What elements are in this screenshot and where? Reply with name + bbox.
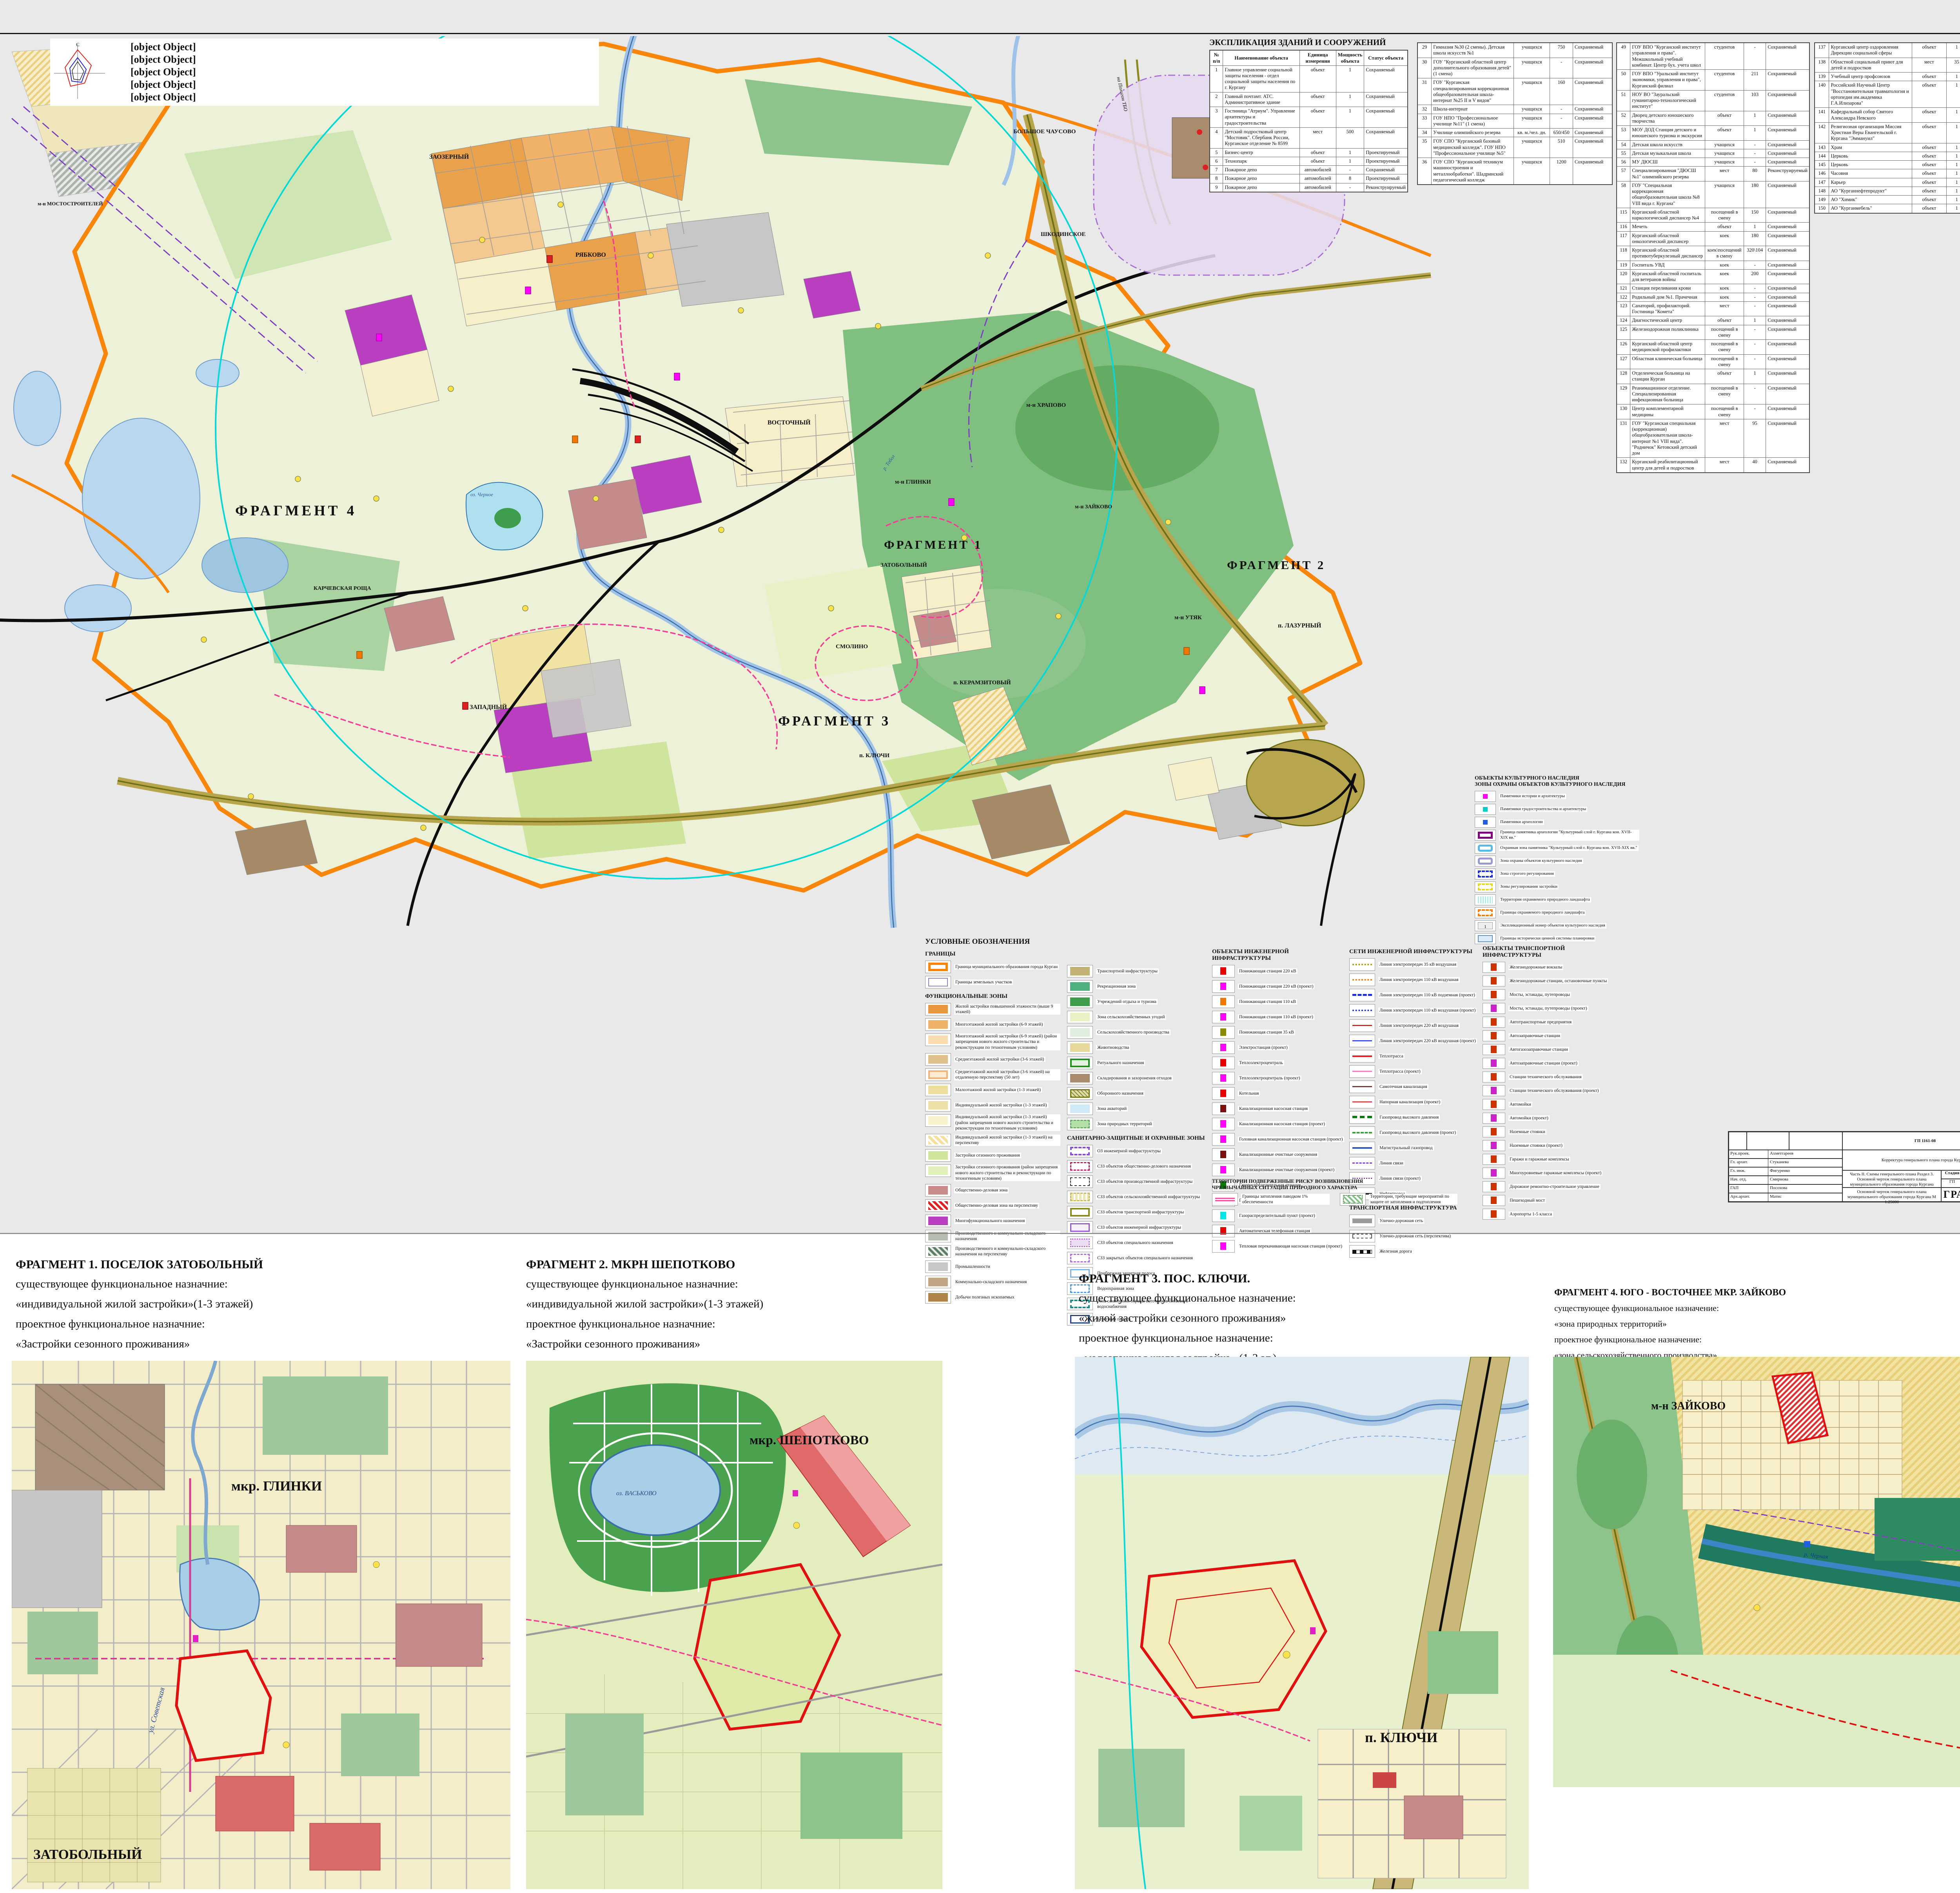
legend-swatch-fill [1070,1089,1090,1098]
legend-swatch-fill [928,1086,948,1094]
legend-item-label: Наземные стоянки (проект) [1508,1143,1564,1148]
cell-unit: учащихся [1514,158,1550,185]
cell-num: 36 [1417,158,1432,185]
fragment-title-line: ФРАГМЕНТ 1. ПОСЕЛОК ЗАТОБОЛЬНЫЙ [16,1254,263,1274]
legend-swatch [1067,1237,1093,1249]
fragment-title-line: «зона природных территорий» [1554,1316,1786,1332]
legend-item: Станции технического обслуживания [1483,1072,1616,1082]
legend-swatch [1349,1050,1375,1063]
cell-status: Проектируемый [1364,174,1408,183]
legend-swatch [925,1164,951,1177]
legend-swatch-fill [1070,997,1090,1006]
legend-item: Общественно-деловая зона на перспективу [925,1199,1060,1212]
fragment-title-line: проектное функциональное назначение: [1554,1332,1786,1347]
stamp-name: Фигуренко [1768,1168,1842,1175]
cell-num: 130 [1617,404,1630,419]
legend-item: Жилой застройки повышенной этажности (вы… [925,1003,1060,1015]
cell-capacity: 160 [1550,78,1573,105]
map-place-label: на Полигон ТБО [1116,76,1129,112]
explication-row: 56 МУ ДЮСШ учащихся - Сохраняемый [1617,158,1809,167]
org-logo-text: ГРАД [1944,1189,1960,1200]
cell-capacity: 500 [1336,127,1364,148]
cell-capacity: - [1744,293,1766,301]
legend-item: Пешеходный мост [1483,1195,1616,1206]
legend-swatch [1483,1030,1505,1041]
legend-item-label: Понижающая станция 110 кВ (проект) [1238,1014,1314,1020]
cell-name: Отделенческая больница на станции Курган [1630,369,1705,384]
cell-status: Сохраняемый [1766,325,1809,340]
cell-num: 32 [1417,105,1432,114]
legend-item-label: Автотранспортные предприятия [1508,1019,1573,1025]
cell-num: 9 [1210,183,1223,192]
cell-status: Сохраняемый [1766,458,1809,473]
legend-item: Газопровод высокого давления (проект) [1349,1126,1479,1139]
legend-item: Линия электропередач 110 кВ подземная (п… [1349,989,1479,1001]
cell-num: 31 [1417,78,1432,105]
cell-capacity: 180 [1744,231,1766,246]
cell-unit: мест [1705,167,1744,181]
legend-item: Зона сельскохозяйственных угодий [1067,1011,1206,1023]
legend-swatch [1212,1026,1235,1039]
legend-swatch-fill [1352,1250,1372,1254]
legend-swatch [1349,1157,1375,1170]
cell-capacity: - [1550,114,1573,129]
legend-item: Памятники градостроительства и архитекту… [1475,804,1639,815]
fragment-title-line: проектное функциональное назначение: [1079,1328,1296,1348]
legend-swatch [1212,1193,1238,1206]
explication-row: 9 Пожарное депо автомобилей - Реконструи… [1210,183,1408,192]
cell-name: Курганский центр оздоровления Дирекции с… [1829,43,1912,58]
legend-swatch [925,1245,951,1258]
explication-row: 117 Курганский областной онкологический … [1617,231,1809,246]
cell-capacity: 1 [1946,81,1960,108]
legend-swatch [1483,962,1505,973]
legend-item-label: Теплотрасса [1378,1053,1405,1059]
cell-name: Религиозная организация Миссия Христиан … [1829,122,1912,143]
cell-num: 6 [1210,157,1223,165]
legend-swatch [1067,1102,1093,1115]
legend-item: Зоны регулирования застройки [1475,881,1639,892]
legend-item: Автозаправочные станции (проект) [1483,1058,1616,1069]
legend-swatch [1349,1065,1375,1078]
legend-item-label: Зоны регулирования застройки [1499,884,1559,890]
legend-item-label: Застройки сезонного проживания [954,1153,1021,1158]
legend-item: Железнодорожные вокзалы [1483,962,1616,973]
legend-item-label: Рекреационная зона [1096,984,1137,989]
stamp-role: ГАП [1729,1185,1768,1193]
cell-capacity: 103 [1744,90,1766,111]
legend-swatch [1349,1230,1375,1242]
legend-swatch [1349,1142,1375,1154]
legend-item-label: Тепловая перекачивающая насосная станция… [1238,1244,1343,1249]
legend-swatch-fill [1491,977,1497,985]
cell-num: 4 [1210,127,1223,148]
legend-swatch [1212,1240,1235,1253]
legend-item: Многоуровневые гаражные комплексы (проек… [1483,1168,1616,1179]
legend-item-label: Магистральный газопровод [1378,1145,1434,1151]
explication-row: 122 Родильный дом №1. Прачечная коек - С… [1617,293,1809,301]
explication-row: 3 Гостиница "Атриум". Управление архитек… [1210,107,1408,128]
map-place-label: ШКОДИНСКОЕ [1041,231,1086,238]
legend-item-label: Канализационная насосная станция (проект… [1238,1121,1326,1127]
legend-item: Зона природных территорий [1067,1118,1206,1130]
legend-item: Газопровод высокого давления [1349,1111,1479,1124]
legend-swatch [1212,1148,1235,1161]
legend-item: Оборонного назначения [1067,1087,1206,1100]
legend-swatch [925,1134,951,1146]
legend-item-label: СЗЗ объектов производственной инфраструк… [1096,1179,1194,1184]
map-place-label: м-н УТЯК [1174,615,1202,621]
legend-swatch [1475,856,1496,867]
legend-item-label: Многоэтажной жилой застройки (6-9 этажей… [954,1034,1060,1050]
fragment2-title: ФРАГМЕНТ 2. МКРН ШЕПОТКОВОсуществующее ф… [526,1254,763,1354]
cell-name: Главный почтамт. АТС. Административное з… [1223,92,1299,107]
explication-row: 127 Областная клиническая больница посещ… [1617,354,1809,369]
fragment-title-line: существующее функциональное назначние: [526,1274,763,1294]
cell-unit: автомобилей [1299,166,1336,174]
legend-item: Транспортной инфраструктуры [1067,965,1206,977]
drawing-title-line: [object Object] [131,41,596,53]
legend-main-title: УСЛОВНЫЕ ОБОЗНАЧЕНИЯ [925,937,1060,946]
legend-item-label: Теплоэлектроцентраль (проект) [1238,1075,1301,1081]
cell-name: ГОУ "Специальная коррекционная общеобраз… [1630,181,1705,208]
legend-item: Понижающая станция 220 кВ (проект) [1212,980,1345,993]
legend-swatch-fill [1070,1254,1090,1262]
cell-unit: посещений в смену [1705,325,1744,340]
legend-swatch [925,1291,951,1304]
legend-swatch [1483,976,1505,986]
legend-swatch-fill [1478,870,1493,878]
explication-row: 30 ГОУ "Курганский областной центр допол… [1417,58,1612,78]
cell-name: Курганский областной онкологический дисп… [1630,231,1705,246]
explication-row: 132 Курганский реабилитационный центр дл… [1617,458,1809,473]
legend-item-label: Гаражи и гаражные комплексы [1508,1157,1570,1162]
legend-swatch-fill [1491,1101,1497,1108]
legend-swatch-fill [1491,1142,1497,1149]
cell-status: Сохраняемый [1766,301,1809,316]
legend-swatch [925,1276,951,1288]
cell-name: Учебный центр профсоюзов [1829,73,1912,81]
legend-item-label: Линия электропередач 110 кВ воздушная (п… [1378,1008,1477,1013]
legend-swatch-fill [1220,1059,1226,1066]
cell-status: Проектируемый [1364,157,1408,165]
cell-unit: объект [1705,316,1744,325]
cell-capacity: - [1744,43,1766,70]
cell-name: Карьер [1829,178,1912,187]
cell-num: 142 [1815,122,1829,143]
cell-name: Курганский областной противотуберкулезны… [1630,246,1705,261]
cell-num: 8 [1210,174,1223,183]
cell-unit: объект [1912,43,1946,58]
legend-swatch-fill [1220,1166,1226,1173]
cell-capacity: - [1744,158,1766,167]
legend-item: Линия электропередач 220 кВ воздушная (п… [1349,1035,1479,1047]
legend-heading-nets: СЕТИ ИНЖЕНЕРНОЙ ИНФРАСТРУКТУРЫ [1349,948,1479,955]
legend-item: Электростанция (проект) [1212,1041,1345,1054]
legend-swatch-fill [1352,979,1372,981]
cell-status: Сохраняемый [1766,208,1809,223]
cell-num: 33 [1417,114,1432,129]
map-place-label: ФРАГМЕНТ 2 [1227,558,1325,572]
cell-unit: объект [1912,81,1946,108]
legend-swatch [1349,1004,1375,1017]
cell-capacity: 1 [1744,223,1766,231]
legend-item: Улично-дорожная сеть [1349,1215,1479,1227]
legend-swatch [1349,1019,1375,1032]
stamp-name: Смирнова [1768,1176,1842,1184]
explication-block-2: 29 Гимназия №30 (2 смены). Детская школа… [1417,42,1612,185]
cell-unit: объект [1912,73,1946,81]
stamp-role: Арх.архит. [1729,1193,1768,1201]
fragment-title-line: «Застройки сезонного проживания» [526,1334,763,1354]
heritage-title-2: ЗОНЫ ОХРАНЫ ОБЪЕКТОВ КУЛЬТУРНОГО НАСЛЕДИ… [1475,781,1639,788]
legend-swatch [925,1184,951,1197]
explication-row: 1 Главное управление социальной защиты н… [1210,65,1408,92]
legend-swatch [1475,894,1496,905]
fragment4-canvas [1553,1357,1960,1787]
legend-swatch [1483,1126,1505,1137]
cell-name: Областная клиническая больница [1630,354,1705,369]
legend-swatch-fill [1070,1120,1090,1128]
cell-name: Храм [1829,143,1912,152]
legend-item: Наземные стоянки (проект) [1483,1140,1616,1151]
map-place-label: ФРАГМЕНТ 4 [235,502,357,519]
cell-status: Сохраняемый [1573,43,1612,58]
cell-name: ГОУ НПО "Профессиональное училище №11" (… [1432,114,1514,129]
legend-swatch-fill [1220,1044,1226,1051]
cell-unit: посещений в смену [1705,384,1744,404]
legend-item: Индивидуальной жилой застройки (1-3 этаж… [925,1099,1060,1112]
legend-item-label: Линия электропередач 220 кВ воздушная (п… [1378,1038,1477,1044]
cell-name: АО "Курганмебель" [1829,204,1912,213]
legend-item-label: Аэропорты 1-5 класса [1508,1211,1553,1217]
legend-swatch [1067,1087,1093,1100]
explication-row: 52 Дворец детского юношеского творчества… [1617,111,1809,126]
legend-item-label: Памятники истории и архитектуры [1499,794,1566,799]
legend-swatch-fill [928,1186,948,1195]
legend-item-label: СЗЗ объектов инженерной инфраструктуры [1096,1225,1182,1230]
stamp-name: Матис [1768,1193,1842,1201]
legend-item: Канализационные очистные сооружения [1212,1148,1345,1161]
cell-name: Центр комплементарной медицины [1630,404,1705,419]
legend-item: СЗЗ объектов специального назначения [1067,1237,1206,1249]
legend-item-label: Среднеэтажной жилой застройки (3-6 этаже… [954,1069,1060,1081]
cell-name: АО "Химик" [1829,196,1912,204]
cell-capacity: - [1744,354,1766,369]
cell-num: 117 [1617,231,1630,246]
cell-unit: посещений в смену [1705,404,1744,419]
legend-item: Территории, требующие мероприятий по защ… [1340,1193,1457,1206]
legend-swatch [925,1230,951,1242]
legend-item-label: Теплоэлектроцентраль [1238,1060,1284,1066]
legend-swatch-fill [1220,1151,1226,1158]
explication-row: 143 Храм объект 1 Проектируемый [1815,143,1960,152]
cell-unit: объект [1912,122,1946,143]
legend-item-label: Ритуального назначения [1096,1060,1145,1066]
legend-item-label: Мосты, эстакады, путепроводы [1508,992,1571,997]
stamp-project: Корректура генерального плана города Кур… [1842,1150,1960,1170]
cell-unit: объект [1299,65,1336,92]
legend-item: Застройки сезонного проживания [925,1149,1060,1162]
legend-item: Теплотрасса (проект) [1349,1065,1479,1078]
cell-unit: объект [1912,178,1946,187]
legend-swatch [1475,869,1496,879]
cell-name: Училище олимпийского резерва [1432,129,1514,137]
cell-unit: студентов [1705,90,1744,111]
legend-swatch-fill [1220,1212,1226,1219]
cell-num: 56 [1617,158,1630,167]
legend-item: Мосты, эстакады, путепроводы [1483,989,1616,1000]
legend-swatch-fill [1070,1238,1090,1247]
legend-swatch-fill [928,1116,948,1125]
legend-swatch-fill [1483,794,1488,799]
cell-capacity: 1 [1946,122,1960,143]
map-place-label: ВОСТОЧНЫЙ [768,419,811,426]
legend-swatch-fill [928,1151,948,1160]
legend-swatch-fill [1491,1183,1497,1190]
cell-unit: объект [1912,152,1946,160]
cell-unit: студентов [1705,43,1744,70]
explication-row: 123 Санаторий, профилакторий. Гостиница … [1617,301,1809,316]
legend-swatch [1475,881,1496,892]
cell-num: 148 [1815,187,1829,195]
cell-status: Сохраняемый [1766,246,1809,261]
cell-unit: мест [1705,458,1744,473]
legend-swatch-fill [1491,963,1497,971]
cell-status: Сохраняемый [1573,137,1612,158]
cell-capacity: - [1744,149,1766,158]
explication-row: 6 Технопарк объект 1 Проектируемый [1210,157,1408,165]
legend-swatch-fill [1491,1128,1497,1135]
legend-swatch [1349,1215,1375,1227]
legend-item-label: Добычи полезных ископаемых [954,1295,1016,1300]
legend-swatch [1067,1118,1093,1130]
cell-capacity: 180 [1744,181,1766,208]
legend-item: Граница муниципального образования город… [925,961,1060,973]
cell-unit: посещений в смену [1705,208,1744,223]
cell-capacity: - [1744,284,1766,293]
cell-num: 145 [1815,161,1829,169]
cell-capacity: 1 [1744,316,1766,325]
stamp-role: Рук.проек. [1729,1150,1768,1158]
legend-swatch-fill [1070,1074,1090,1082]
legend-item-label: Многофункционального назначения [954,1218,1026,1224]
fragment-title-line: «индивидуальной жилой застройки»(1-3 эта… [526,1294,763,1314]
cell-capacity: 1 [1946,108,1960,123]
legend-item-label: Зона сельскохозяйственных угодий [1096,1014,1166,1020]
map-place-label: м-н ХРАПОВО [1026,402,1066,409]
legend-swatch-fill [1220,983,1226,990]
legend-swatch-fill [1491,1114,1497,1122]
cell-num: 30 [1417,58,1432,78]
legend-swatch [1067,1175,1093,1188]
legend-swatch [1212,995,1235,1008]
explication-row: 137 Курганский центр оздоровления Дирекц… [1815,43,1960,58]
cell-status: Сохраняемый [1766,316,1809,325]
explication-row: 128 Отделенческая больница на станции Ку… [1617,369,1809,384]
cell-num: 123 [1617,301,1630,316]
cell-capacity: 1 [1946,187,1960,195]
legend-item-label: Автомойки (проект) [1508,1115,1550,1121]
legend-item-label: Автогазозаправочные станции [1508,1047,1569,1052]
cell-num: 141 [1815,108,1829,123]
cell-capacity: 95 [1744,419,1766,458]
legend-item-label: Линия электропередач 220 кВ воздушная [1378,1023,1460,1028]
legend-item-label: Транспортной инфраструктуры [1096,968,1159,974]
cell-capacity: - [1744,261,1766,269]
legend-swatch [1067,965,1093,977]
legend-item: Автоматическая телефонная станция [1212,1225,1345,1237]
map-place-label: ЗАТОБОЛЬНЫЙ [880,562,927,569]
cell-status: Сохраняемый [1573,114,1612,129]
explication-row: 51 НОУ ВО "Зауральский гуманитарно-техно… [1617,90,1809,111]
legend-swatch-fill [1070,1059,1090,1067]
explication-block-4: 137 Курганский центр оздоровления Дирекц… [1814,42,1960,214]
legend-item: Памятники археологии [1475,817,1639,828]
explication-row: 124 Диагностический центр объект 1 Сохра… [1617,316,1809,325]
legend-swatch [925,1018,951,1031]
legend-swatch [1067,1221,1093,1234]
legend-swatch-fill [1478,883,1493,890]
legend-swatch-fill [1220,1135,1226,1143]
cell-status: Сохраняемый [1766,419,1809,458]
legend-item-label: Мосты, эстакады, путепроводы (проект) [1508,1006,1588,1011]
cell-status: Сохраняемый [1766,269,1809,284]
cell-name: Церковь [1829,161,1912,169]
legend-item-label: Сельскохозяйственного производства [1096,1030,1171,1035]
cell-status: Сохраняемый [1766,261,1809,269]
legend-item: Газораспределительный пункт (проект) [1212,1209,1345,1222]
legend-item: Границы охраняемого природного ландшафта [1475,907,1639,918]
legend-item-label: Линия электропередач 110 кВ воздушная [1378,977,1460,983]
legend-swatch-fill [1343,1195,1363,1204]
cell-status: Сохраняемый [1573,129,1612,137]
cell-num: 53 [1617,126,1630,141]
cell-status: Сохраняемый [1766,111,1809,126]
legend-swatch-fill [1491,991,1497,998]
cell-num: 147 [1815,178,1829,187]
legend-item: Теплоэлектроцентраль (проект) [1212,1072,1345,1084]
legend-item-label: Котельная [1238,1091,1260,1096]
legend-swatch [1483,1154,1505,1165]
stamp-name: Стуканева [1768,1159,1842,1167]
legend-swatch [1212,1209,1235,1222]
cell-name: Станция переливания крови [1630,284,1705,293]
explication-row: 126 Курганский областной центр медицинск… [1617,340,1809,355]
cell-unit: учащихся [1514,58,1550,78]
cell-unit: коек [1705,269,1744,284]
legend-swatch [1483,1085,1505,1096]
legend-item-label: Наземные стоянки [1508,1129,1546,1135]
fragment-title-line: ФРАГМЕНТ 4. ЮГО - ВОСТОЧНЕЕ МКР. ЗАЙКОВО [1554,1285,1786,1300]
cell-num: 58 [1617,181,1630,208]
legend-item-label: Автомойки [1508,1102,1532,1107]
stamp-code: ГП 1161-08 [1842,1132,1960,1150]
explication-block-1: ЭКСПЛИКАЦИЯ ЗДАНИЙ И СООРУЖЕНИЙ № п/п На… [1209,38,1407,192]
explication-row: 125 Железнодорожная поликлиника посещени… [1617,325,1809,340]
cell-capacity: - [1744,404,1766,419]
legend-swatch-fill [928,1293,948,1302]
explication-row: 7 Пожарное депо автомобилей - Сохраняемы… [1210,166,1408,174]
legend-swatch-fill [1352,1162,1372,1164]
legend-item: Линия электропередач 110 кВ воздушная (п… [1349,1004,1479,1017]
cell-status: Сохраняемый [1364,65,1408,92]
legend-swatch [1483,1209,1505,1220]
cell-name: Курганский реабилитационный центр для де… [1630,458,1705,473]
legend-item: Железная дорога [1349,1245,1479,1258]
legend-swatch [925,1199,951,1212]
legend-swatch-fill [928,963,948,971]
